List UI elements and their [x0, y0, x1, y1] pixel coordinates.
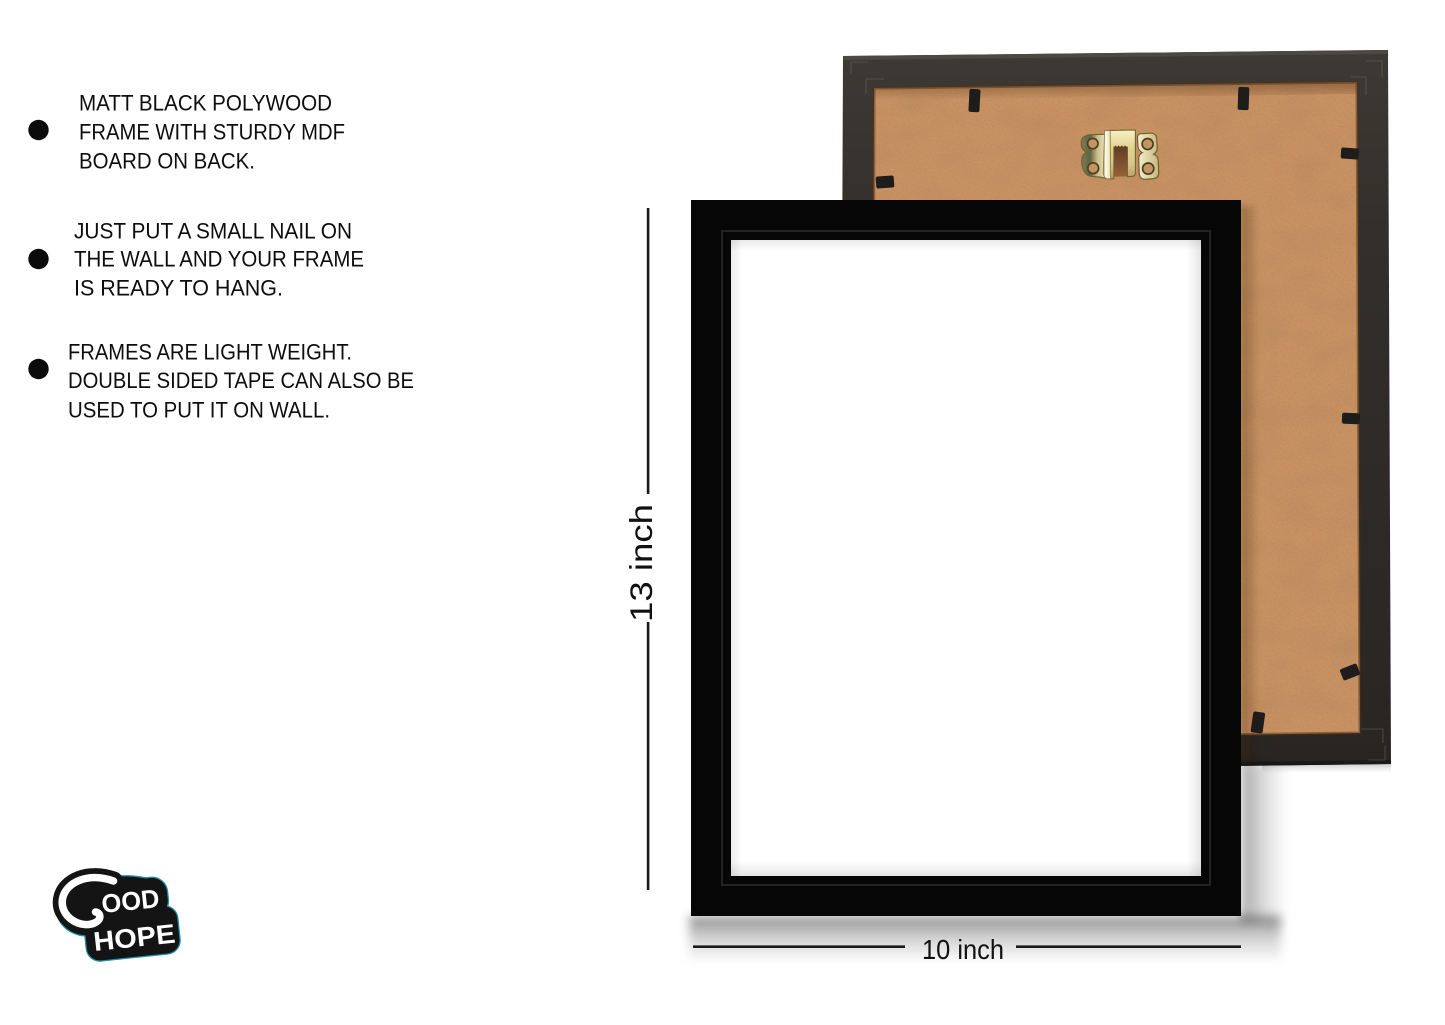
svg-text:USED TO PUT IT ON WALL.: USED TO PUT IT ON WALL. — [68, 398, 330, 423]
svg-text:JUST PUT A SMALL NAIL ON: JUST PUT A SMALL NAIL ON — [74, 219, 352, 244]
svg-text:BOARD ON BACK.: BOARD ON BACK. — [79, 149, 255, 174]
svg-text:IS READY TO HANG.: IS READY TO HANG. — [74, 276, 283, 301]
svg-text:MATT BLACK POLYWOOD: MATT BLACK POLYWOOD — [79, 91, 332, 116]
svg-text:OOD: OOD — [100, 883, 161, 919]
svg-text:10 inch: 10 inch — [922, 934, 1004, 965]
svg-text:DOUBLE SIDED TAPE CAN ALSO BE: DOUBLE SIDED TAPE CAN ALSO BE — [68, 368, 414, 393]
svg-text:THE WALL AND YOUR FRAME: THE WALL AND YOUR FRAME — [74, 247, 364, 272]
svg-text:FRAMES ARE LIGHT WEIGHT.: FRAMES ARE LIGHT WEIGHT. — [68, 340, 352, 365]
svg-text:FRAME WITH STURDY MDF: FRAME WITH STURDY MDF — [79, 120, 345, 145]
svg-text:13 inch: 13 inch — [623, 504, 659, 622]
